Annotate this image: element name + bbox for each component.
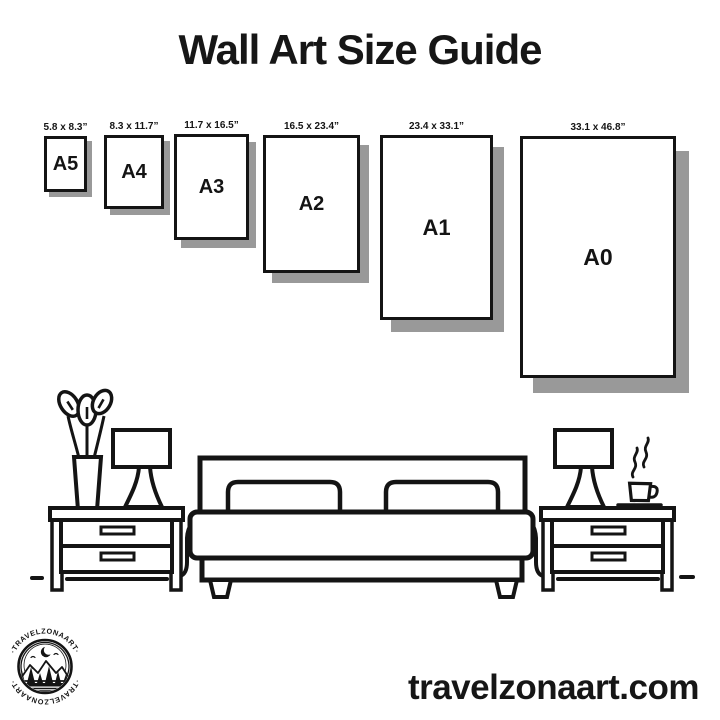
- brand-logo-badge: ·TRAVELZONAART· ·TRAVELZONAART·: [0, 619, 90, 715]
- bedroom-illustration: [0, 0, 720, 720]
- double-bed-icon: [174, 458, 549, 597]
- nightstand-right-icon: [541, 508, 674, 590]
- coffee-cup-icon: [618, 438, 661, 505]
- website-url: travelzonaart.com: [408, 668, 699, 708]
- wall-art-size-guide-poster: Wall Art Size Guide 5.8 x 8.3” A5 8.3 x …: [0, 0, 720, 720]
- table-lamp-left-icon: [113, 430, 170, 507]
- potted-plant-icon: [55, 387, 116, 510]
- nightstand-left-icon: [50, 508, 183, 590]
- table-lamp-right-icon: [555, 430, 612, 507]
